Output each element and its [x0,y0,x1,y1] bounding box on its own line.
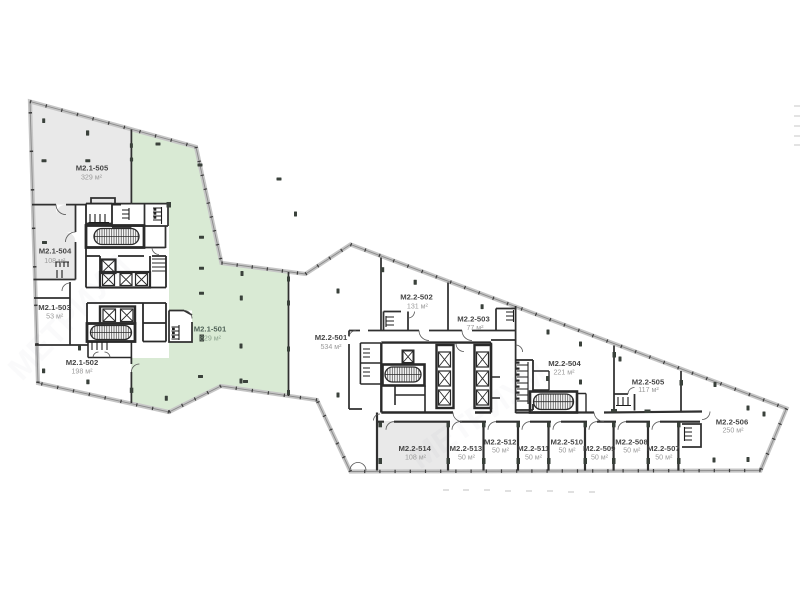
svg-text:M2.2-510: M2.2-510 [551,438,583,447]
svg-text:77 м²: 77 м² [466,324,484,332]
svg-text:M2.2-512: M2.2-512 [484,438,516,447]
svg-text:M2.1-504: M2.1-504 [39,247,72,256]
svg-text:M2.2-507: M2.2-507 [647,444,679,453]
svg-text:M2.2-506: M2.2-506 [716,418,748,427]
svg-text:M2.2-513: M2.2-513 [450,444,482,453]
svg-text:198 м²: 198 м² [71,368,93,376]
svg-text:M2.2-501: M2.2-501 [315,333,348,342]
svg-text:M2.2-504: M2.2-504 [548,359,581,368]
svg-text:221 м²: 221 м² [553,369,575,377]
svg-text:50 м²: 50 м² [458,454,476,462]
svg-text:M2.1-503: M2.1-503 [38,303,70,312]
svg-text:534 м²: 534 м² [320,343,342,351]
svg-text:50 м²: 50 м² [623,447,641,455]
svg-text:50 м²: 50 м² [492,447,510,455]
svg-text:M2.1-502: M2.1-502 [66,358,98,367]
svg-text:50 м²: 50 м² [591,454,609,462]
svg-text:329 м²: 329 м² [81,174,103,182]
svg-text:M2.2-514: M2.2-514 [398,444,431,453]
svg-text:M2.2-503: M2.2-503 [457,315,489,324]
svg-text:50 м²: 50 м² [655,454,673,462]
svg-text:829 м²: 829 м² [200,335,222,343]
svg-text:108 м²: 108 м² [405,454,427,462]
svg-text:M2.1-501: M2.1-501 [194,325,227,334]
svg-text:53 м²: 53 м² [46,313,64,321]
svg-text:M2.2-508: M2.2-508 [615,438,648,447]
svg-text:131 м²: 131 м² [407,303,429,311]
svg-text:50 м²: 50 м² [525,454,543,462]
svg-text:M2.2-502: M2.2-502 [400,293,432,302]
svg-text:50 м²: 50 м² [558,447,576,455]
svg-text:M2.2-511: M2.2-511 [517,444,550,453]
svg-text:M2.1-505: M2.1-505 [76,164,109,173]
svg-text:117 м²: 117 м² [638,386,659,394]
svg-text:250 м²: 250 м² [722,427,744,435]
svg-text:M2.2-509: M2.2-509 [583,444,615,453]
svg-text:108 м²: 108 м² [44,257,66,265]
